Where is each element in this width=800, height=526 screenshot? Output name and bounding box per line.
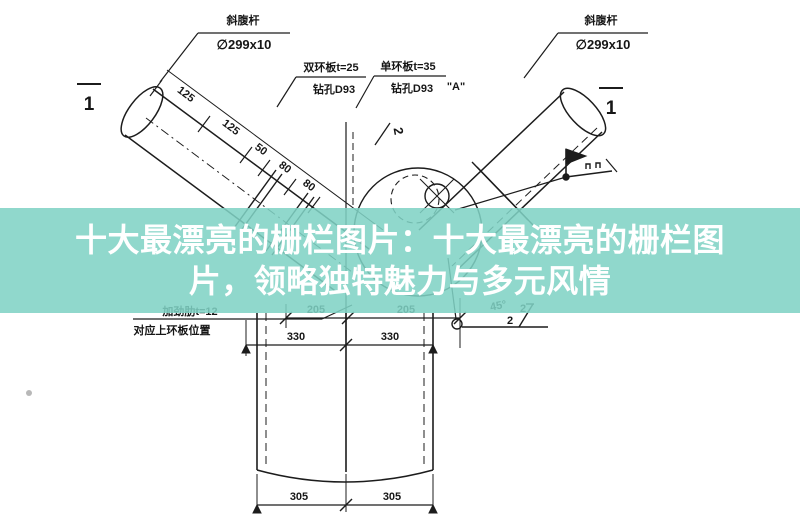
- slope-mark: 2: [375, 123, 407, 145]
- double-ring-plate-label: 双环板t=25 钻孔D93: [277, 60, 366, 107]
- page-title-line-2: 片，领略独特魅力与多元风情: [189, 261, 612, 302]
- right-member-name: 斜腹杆: [584, 13, 618, 27]
- dim-305-row: 305 305: [253, 474, 437, 513]
- dim-330-right: 330: [381, 331, 399, 343]
- detail-mark-a: "A": [447, 81, 465, 93]
- right-tube-end-section: [553, 81, 613, 143]
- field-weld-flag-icon: [455, 149, 617, 210]
- dim-305-left: 305: [290, 491, 308, 503]
- left-diag-dimensions: 125 125 50 80 80: [175, 84, 317, 194]
- dim-diag-125-a: 125: [175, 84, 197, 105]
- weld-gap-text: 2: [507, 315, 513, 327]
- left-member-size: ∅299x10: [217, 37, 272, 52]
- chord-bottom-arc: [257, 470, 433, 482]
- dim-diag-125-b: 125: [220, 117, 242, 138]
- single-ring-hole-text: 钻孔D93: [391, 81, 433, 95]
- page-title-line-1: 十大最漂亮的栅栏图片：十大最漂亮的栅栏图: [75, 220, 725, 261]
- right-member-size: ∅299x10: [576, 37, 631, 52]
- right-member-label: 斜腹杆 ∅299x10: [524, 13, 648, 78]
- left-tube-end-section: [114, 80, 171, 144]
- section-mark-left-number: 1: [84, 94, 95, 115]
- dim-330-left: 330: [287, 331, 305, 343]
- stray-mark: [26, 390, 32, 396]
- stiffener-note-text: 对应上环板位置: [134, 323, 211, 337]
- section-mark-right-number: 1: [606, 98, 617, 119]
- dim-305-right: 305: [383, 491, 401, 503]
- double-ring-text: 双环板t=25: [303, 60, 358, 74]
- left-member-name: 斜腹杆: [226, 13, 260, 27]
- title-overlay-banner: 十大最漂亮的栅栏图片：十大最漂亮的栅栏图 片，领略独特魅力与多元风情: [0, 208, 800, 313]
- dim-330-row: 330 330: [242, 320, 437, 356]
- left-member-label: 斜腹杆 ∅299x10: [160, 13, 290, 82]
- single-ring-plate-label: 单环板t=35 钻孔D93 "A": [356, 59, 465, 108]
- double-ring-hole-text: 钻孔D93: [313, 82, 355, 96]
- single-ring-text: 单环板t=35: [380, 59, 435, 73]
- page: 125 125 50 80 80: [0, 0, 800, 526]
- section-mark-left: 1: [77, 84, 101, 115]
- section-mark-right: 1: [599, 88, 623, 119]
- chord-tube: [257, 313, 433, 482]
- slope-mark-value: 2: [390, 126, 406, 136]
